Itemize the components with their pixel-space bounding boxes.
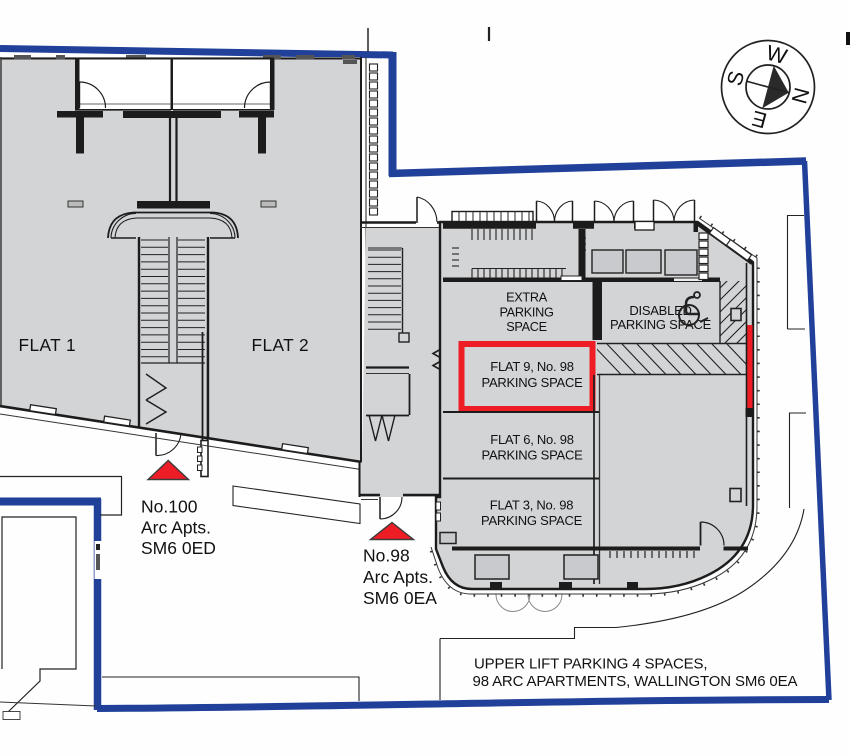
svg-text:SPACE: SPACE	[506, 320, 547, 334]
svg-text:SM6 0EA: SM6 0EA	[363, 588, 437, 608]
svg-text:PARKING SPACE: PARKING SPACE	[481, 375, 583, 390]
svg-text:No.100: No.100	[141, 497, 198, 517]
svg-text:98 ARC APARTMENTS, WALLINGTON: 98 ARC APARTMENTS, WALLINGTON SM6 0EA	[473, 673, 798, 690]
svg-text:SM6 0ED: SM6 0ED	[141, 538, 216, 558]
svg-text:Arc Apts.: Arc Apts.	[141, 518, 211, 538]
svg-text:PARKING SPACE: PARKING SPACE	[481, 447, 583, 462]
svg-text:PARKING SPACE: PARKING SPACE	[481, 513, 583, 528]
svg-text:DISABLED: DISABLED	[629, 303, 691, 318]
svg-text:FLAT 2: FLAT 2	[252, 335, 309, 355]
svg-text:EXTRA: EXTRA	[506, 291, 548, 305]
svg-text:FLAT 3, No. 98: FLAT 3, No. 98	[490, 498, 573, 513]
svg-text:PARKING: PARKING	[499, 305, 553, 319]
svg-text:FLAT 6, No. 98: FLAT 6, No. 98	[490, 432, 573, 447]
svg-text:FLAT 1: FLAT 1	[19, 335, 76, 355]
svg-text:PARKING SPACE: PARKING SPACE	[610, 317, 712, 332]
svg-text:UPPER LIFT PARKING 4 SPACES,: UPPER LIFT PARKING 4 SPACES,	[474, 656, 707, 673]
svg-text:FLAT 9, No. 98: FLAT 9, No. 98	[490, 359, 573, 374]
svg-text:No.98: No.98	[363, 546, 410, 566]
svg-text:Arc Apts.: Arc Apts.	[363, 567, 433, 587]
